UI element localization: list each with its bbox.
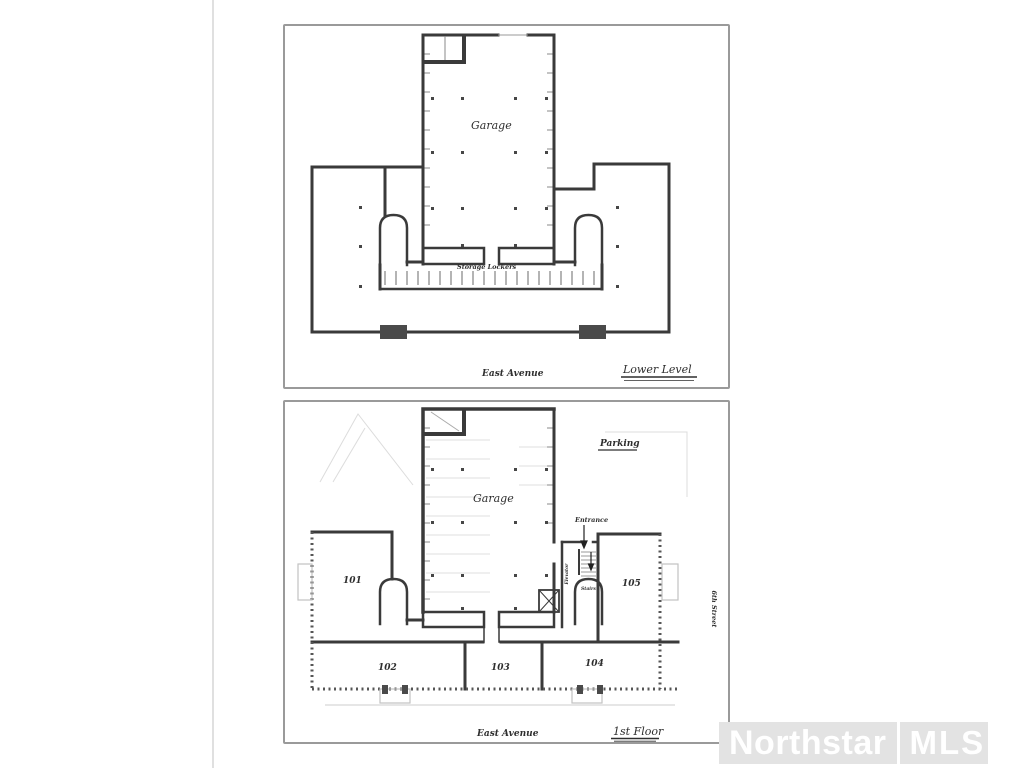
parking-stall-lines <box>426 440 553 592</box>
watermark-brand: Northstar <box>719 722 897 764</box>
stairwell <box>424 36 464 62</box>
lower-level-plan-frame: Garage Storage Lockers East Avenue Lower… <box>283 24 730 389</box>
stairwell <box>424 410 464 434</box>
first-floor-plan-frame: Garage Parking Entrance Elevator Stairs … <box>283 400 730 744</box>
street-label-east-avenue: East Avenue <box>481 369 544 379</box>
watermark-org: MLS <box>900 722 988 764</box>
entry-door-posts <box>382 685 603 694</box>
mls-watermark: Northstar MLS <box>719 722 988 764</box>
scan-ghost-lines <box>320 414 687 497</box>
entrance-label: Entrance <box>574 516 608 524</box>
scanned-floor-plan-page: Garage Storage Lockers East Avenue Lower… <box>0 0 1024 768</box>
unit-103-label: 103 <box>491 663 510 673</box>
unit-104-label: 104 <box>585 659 604 669</box>
entrance-arrows <box>581 525 594 570</box>
unit-102-label: 102 <box>378 663 397 673</box>
scan-page-edge-line <box>212 0 214 768</box>
title-underline <box>621 377 697 381</box>
unit-101-label: 101 <box>343 576 362 586</box>
first-floor-plan-drawing: Garage Parking Entrance Elevator Stairs … <box>285 402 728 742</box>
elevator-shaft <box>539 590 559 612</box>
elevator-label: Elevator <box>564 563 570 586</box>
stairs-label: Stairs <box>581 586 596 592</box>
column-ticks <box>423 54 554 225</box>
garage-label: Garage <box>471 119 512 132</box>
storage-locker-stalls <box>385 271 594 285</box>
garage-label: Garage <box>473 492 514 505</box>
parking-label: Parking <box>599 439 640 449</box>
title-underline <box>611 739 659 742</box>
street-label-east-avenue: East Avenue <box>476 729 539 739</box>
lower-level-plan-drawing: Garage Storage Lockers East Avenue Lower… <box>285 26 728 387</box>
unit-105-label: 105 <box>622 579 641 589</box>
storage-lockers-label: Storage Lockers <box>457 263 517 271</box>
plan-title-lower-level: Lower Level <box>622 363 692 376</box>
street-label-6th-street: 6th Street <box>710 591 718 628</box>
walls <box>312 35 669 332</box>
column-dots <box>431 468 548 610</box>
walls <box>312 409 678 689</box>
plan-title-1st-floor: 1st Floor <box>613 725 664 738</box>
